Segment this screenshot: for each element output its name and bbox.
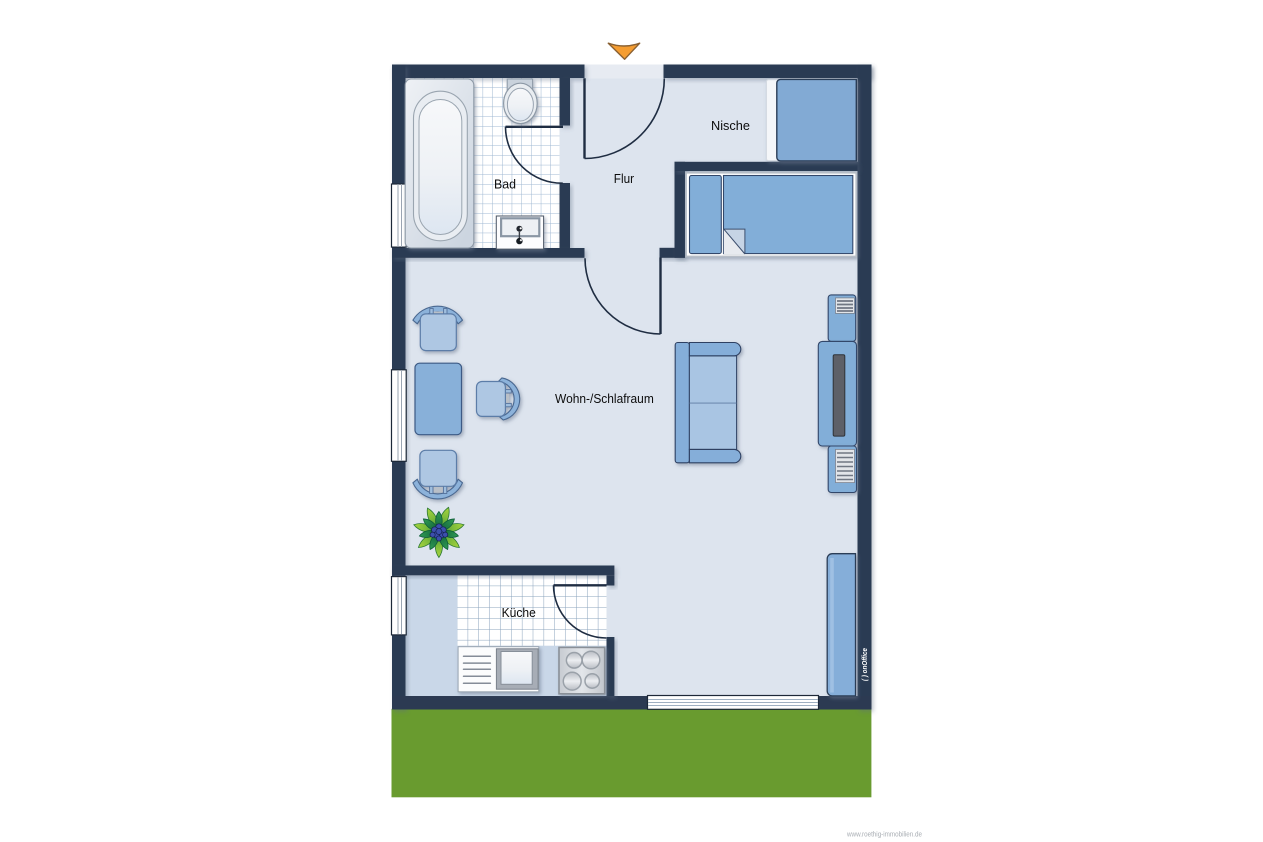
svg-text:Flur: Flur xyxy=(614,171,635,186)
svg-text:Nische: Nische xyxy=(711,118,750,133)
svg-text:Küche: Küche xyxy=(502,605,536,620)
svg-text:Wohn-/Schlafraum: Wohn-/Schlafraum xyxy=(555,391,654,406)
svg-text:Bad: Bad xyxy=(494,177,516,192)
svg-text:( ) onOffice: ( ) onOffice xyxy=(862,648,869,681)
svg-text:www.roethig-immobilien.de: www.roethig-immobilien.de xyxy=(846,829,922,838)
